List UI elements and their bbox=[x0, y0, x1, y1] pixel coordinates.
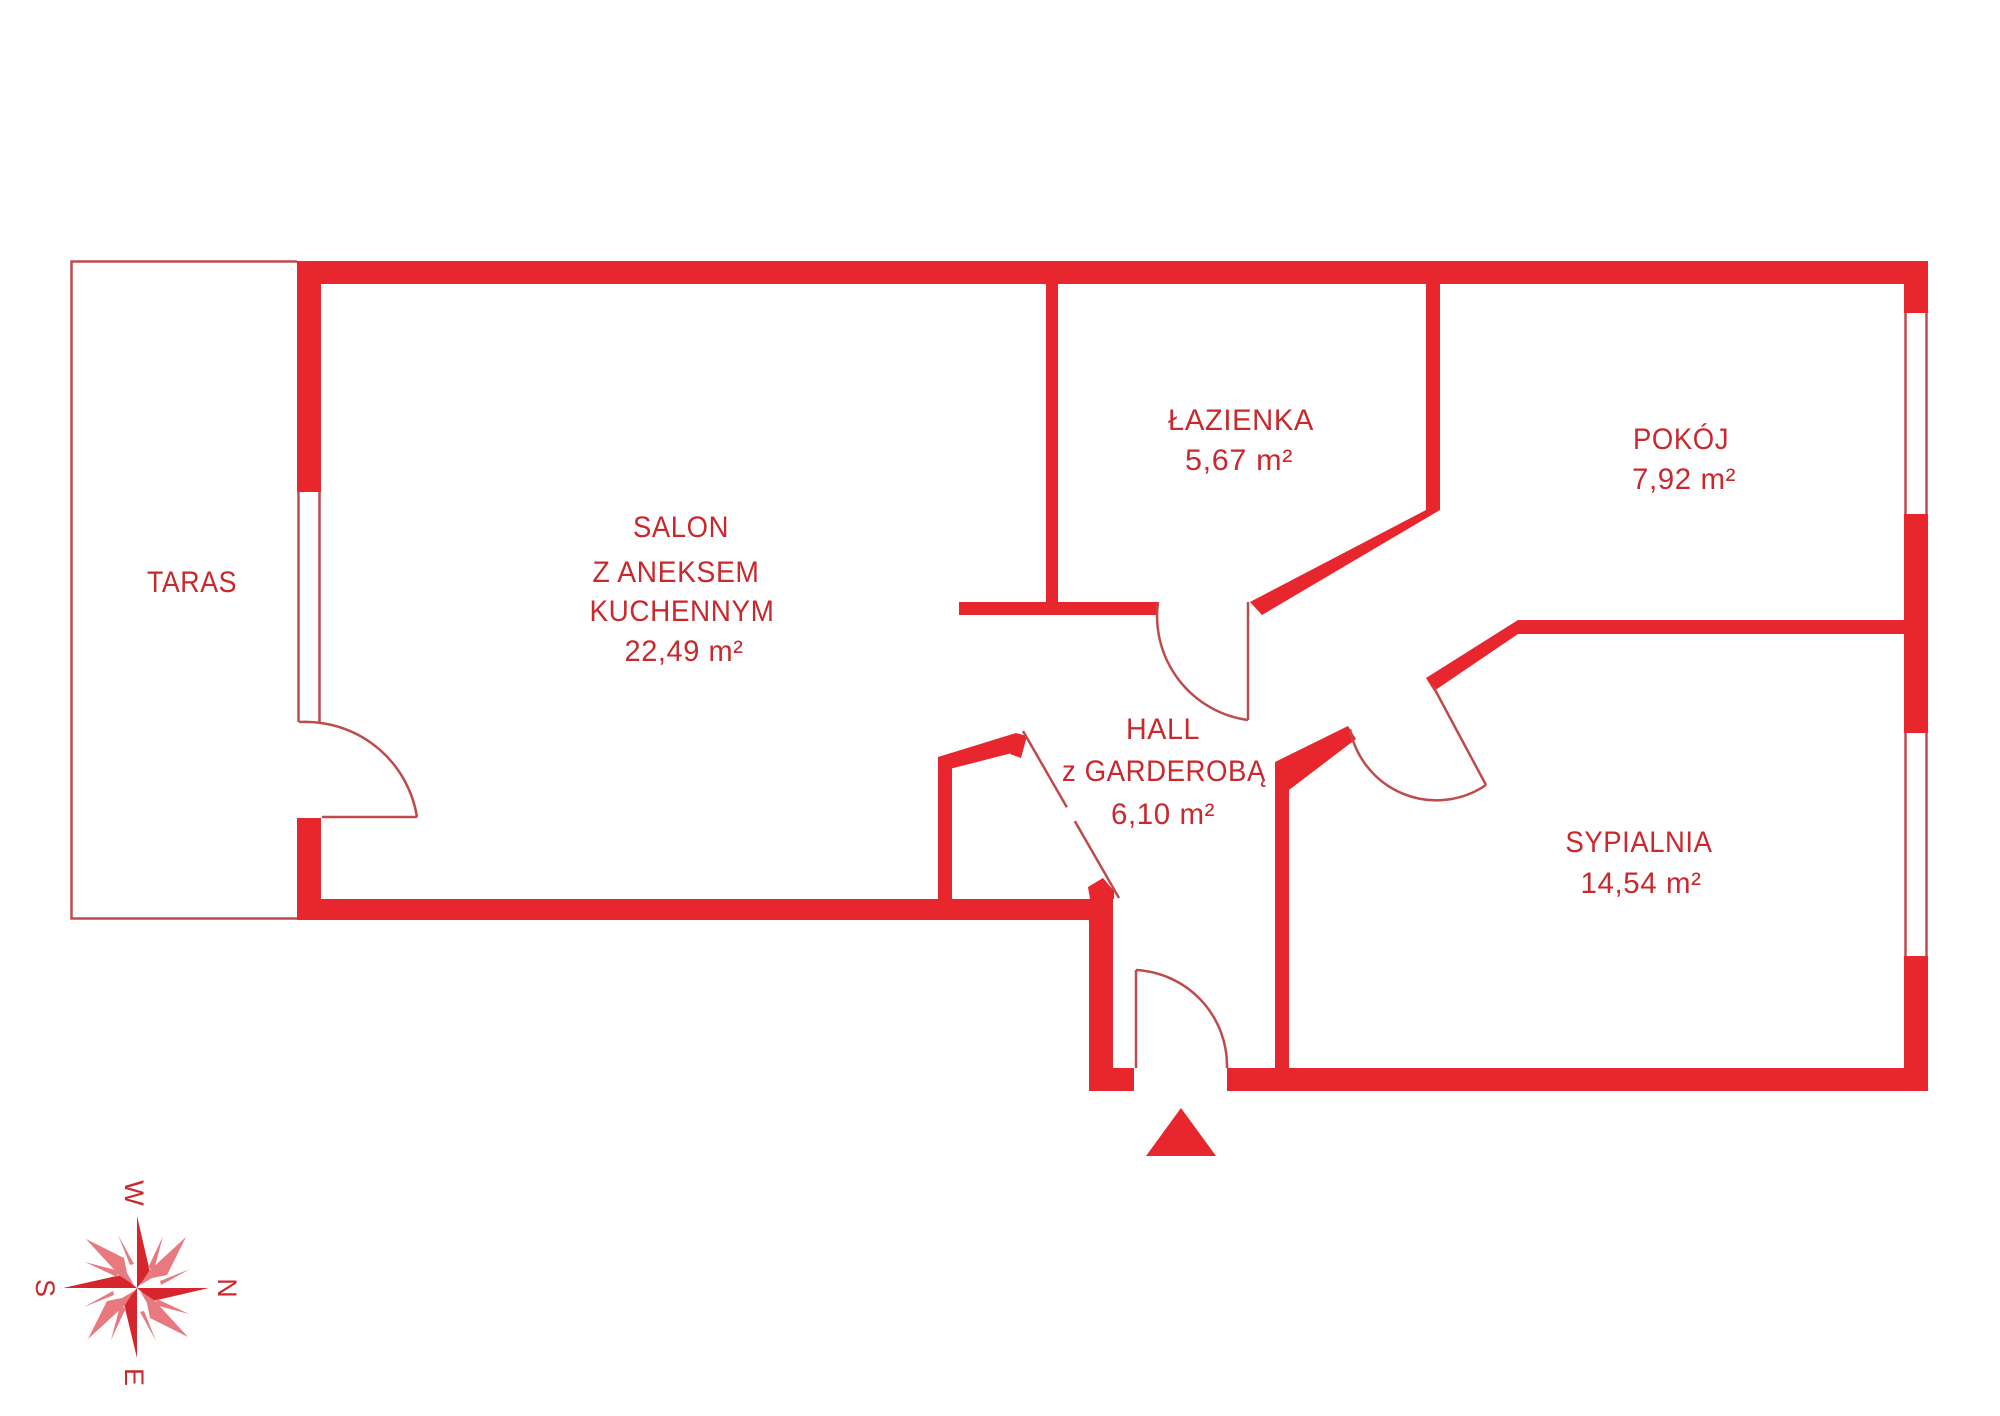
svg-text:POKÓJ: POKÓJ bbox=[1633, 423, 1729, 456]
svg-text:5,67 m²: 5,67 m² bbox=[1185, 444, 1293, 477]
svg-text:W: W bbox=[119, 1180, 149, 1206]
svg-text:Z ANEKSEM: Z ANEKSEM bbox=[593, 556, 760, 589]
svg-text:z GARDEROBĄ: z GARDEROBĄ bbox=[1062, 755, 1266, 788]
svg-text:KUCHENNYM: KUCHENNYM bbox=[590, 595, 775, 628]
svg-text:SYPIALNIA: SYPIALNIA bbox=[1566, 826, 1713, 859]
svg-text:7,92 m²: 7,92 m² bbox=[1632, 463, 1736, 496]
svg-text:6,10 m²: 6,10 m² bbox=[1111, 798, 1215, 831]
svg-text:N: N bbox=[212, 1278, 242, 1298]
svg-text:22,49 m²: 22,49 m² bbox=[625, 635, 744, 668]
svg-text:SALON: SALON bbox=[633, 511, 729, 544]
svg-text:14,54 m²: 14,54 m² bbox=[1581, 867, 1702, 900]
svg-text:TARAS: TARAS bbox=[147, 566, 237, 599]
svg-text:ŁAZIENKA: ŁAZIENKA bbox=[1168, 404, 1314, 437]
svg-text:HALL: HALL bbox=[1126, 713, 1200, 746]
svg-text:S: S bbox=[30, 1279, 60, 1297]
svg-text:E: E bbox=[119, 1368, 149, 1386]
